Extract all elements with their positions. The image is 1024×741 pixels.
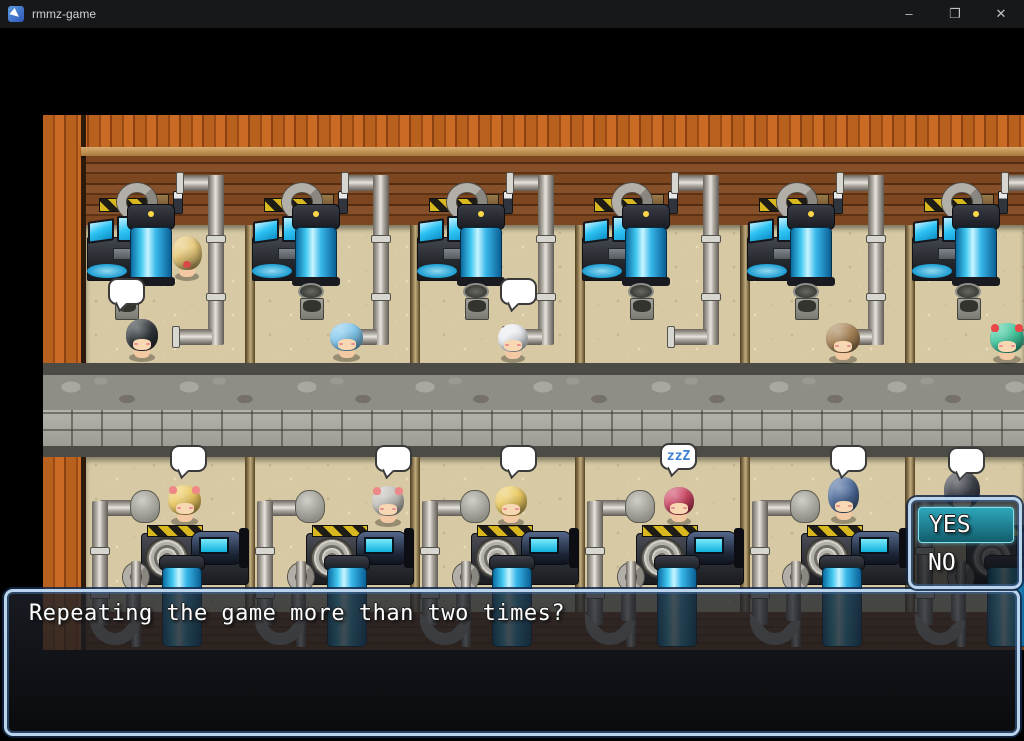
trash-bin-opening <box>633 300 651 312</box>
character-blush <box>505 344 509 346</box>
tank-cylinder <box>790 227 832 282</box>
character-blush <box>503 508 507 510</box>
character-blush <box>392 508 396 510</box>
window-title: rmmz-game <box>32 7 96 21</box>
pipe-vertical <box>373 175 389 345</box>
speech-bubble <box>500 278 537 305</box>
path-edge-top <box>43 363 1024 375</box>
floor-mat-cyan <box>912 264 952 278</box>
speech-bubble <box>108 278 145 305</box>
character-face <box>835 501 853 512</box>
speech-bubble <box>948 447 985 474</box>
character-blush <box>177 507 181 509</box>
tank-light <box>643 211 649 217</box>
speech-bubble <box>500 445 537 472</box>
pipe-vertical <box>703 175 719 345</box>
pipe-vertical <box>538 175 554 345</box>
minimize-button[interactable]: – <box>886 0 932 28</box>
tank-light <box>148 211 154 217</box>
pipe-flange <box>536 235 556 243</box>
pipe-flange <box>1001 172 1009 194</box>
sack <box>295 490 325 523</box>
tank-light <box>313 211 319 217</box>
side-tank-cap <box>569 528 579 568</box>
floor-mat-cyan <box>87 264 127 278</box>
character-ribbon <box>169 486 177 494</box>
character-face <box>338 339 356 350</box>
sack <box>130 490 160 523</box>
character-blush <box>847 345 851 347</box>
console-screen-left <box>88 218 114 244</box>
side-tank-screen <box>694 537 724 554</box>
character-npc-green-hair <box>990 320 1024 362</box>
side-tank-cap <box>734 528 744 568</box>
pipe-flange <box>506 172 514 194</box>
character-blush <box>515 508 519 510</box>
character-blush <box>836 505 840 507</box>
character-npc-brown-hair <box>826 320 860 362</box>
console-screen-left <box>253 218 279 244</box>
message-text: Repeating the game more than two times? <box>29 601 565 626</box>
character-face <box>834 341 852 352</box>
maximize-button[interactable]: ❐ <box>932 0 978 28</box>
choice-option-no[interactable]: NO <box>918 546 1014 582</box>
path-cobble-face <box>43 410 1024 446</box>
trash-bin-opening <box>468 300 486 312</box>
app-icon <box>8 6 24 22</box>
speech-bubble <box>170 445 207 472</box>
character-blush <box>189 507 193 509</box>
wall-wood-top <box>43 115 1024 150</box>
character-npc-blonde-2 <box>495 483 527 525</box>
character-blush <box>671 507 675 509</box>
tank-light <box>973 211 979 217</box>
character-blush <box>146 343 150 345</box>
pipe-flange <box>206 293 226 301</box>
tank-cylinder <box>295 227 337 282</box>
character-blush <box>380 508 384 510</box>
character-blush <box>848 505 852 507</box>
wall-wood-left-upper <box>43 115 81 374</box>
console-screen-left <box>418 218 444 244</box>
character-blush <box>683 507 687 509</box>
character-face <box>133 339 151 350</box>
pipe-bottom-stub <box>178 329 212 345</box>
pipe-flange <box>341 172 349 194</box>
side-tank-screen <box>364 537 394 554</box>
pipe-flange <box>371 235 391 243</box>
character-npc-darkblue-hair <box>828 474 859 522</box>
pipe-flange <box>536 293 556 301</box>
tank-light <box>478 211 484 217</box>
floor-mat-cyan <box>582 264 622 278</box>
message-window[interactable]: Repeating the game more than two times? <box>4 589 1020 736</box>
floor-mat-cyan <box>417 264 457 278</box>
map-scene: zzZ <box>43 115 1024 650</box>
character-blush <box>134 343 138 345</box>
character-blush <box>1011 345 1015 347</box>
character-face <box>998 341 1016 352</box>
tank-cylinder <box>130 227 172 282</box>
character-blush <box>999 345 1003 347</box>
trash-bin-opening <box>960 300 978 312</box>
side-tank-screen <box>859 537 889 554</box>
sack <box>625 490 655 523</box>
pipe-flange <box>667 326 675 348</box>
pipe-flange <box>206 235 226 243</box>
character-npc-white-hair <box>498 321 528 361</box>
pipe-flange <box>420 547 440 555</box>
pipe-flange <box>701 293 721 301</box>
sack <box>790 490 820 523</box>
side-tank-screen <box>529 537 559 554</box>
character-blush <box>835 345 839 347</box>
pipe-vertical <box>868 175 884 345</box>
pipe-flange <box>585 547 605 555</box>
character-blush <box>351 343 355 345</box>
pipe-flange <box>255 547 275 555</box>
side-tank-screen <box>199 537 229 554</box>
pipe-flange <box>866 235 886 243</box>
choice-option-yes[interactable]: YES <box>918 507 1014 543</box>
pipe-flange <box>836 172 844 194</box>
character-npc-black-hair <box>126 316 158 360</box>
pipe-flange <box>371 293 391 301</box>
console-screen-left <box>583 218 609 244</box>
side-tank-cap <box>404 528 414 568</box>
pipe-flange <box>90 547 110 555</box>
character-ribbon <box>373 487 381 495</box>
character-face <box>504 340 522 351</box>
titlebar: rmmz-game – ❐ ✕ <box>0 0 1024 28</box>
trash-bin-opening <box>798 300 816 312</box>
character-face <box>176 503 194 514</box>
path-walkway <box>43 375 1024 410</box>
floor-mat-cyan <box>747 264 787 278</box>
wall-beam <box>81 147 1024 156</box>
console-screen-left <box>913 218 939 244</box>
character-blush <box>517 344 521 346</box>
character-ribbon <box>395 487 403 495</box>
pipe-flange <box>750 547 770 555</box>
pipe-flange <box>866 293 886 301</box>
game-viewport[interactable]: zzZ Repeating the game more than two tim… <box>0 28 1024 741</box>
character-face <box>502 504 520 515</box>
speech-bubble-sleep: zzZ <box>660 443 697 470</box>
character-face <box>379 504 397 515</box>
pipe-flange <box>172 326 180 348</box>
character-npc-red-hair <box>664 484 694 524</box>
speech-bubble <box>830 445 867 472</box>
character-face <box>670 503 688 514</box>
sack <box>460 490 490 523</box>
speech-bubble <box>375 445 412 472</box>
tank-cylinder <box>460 227 502 282</box>
character-ribbon <box>1015 324 1023 332</box>
pipe-top-stub <box>1007 175 1024 191</box>
tank-cylinder <box>625 227 667 282</box>
close-button[interactable]: ✕ <box>978 0 1024 28</box>
trash-bin-opening <box>303 300 321 312</box>
character-player-blonde <box>172 233 202 279</box>
floor-mat-cyan <box>252 264 292 278</box>
character-blush <box>339 343 343 345</box>
console-screen-left <box>748 218 774 244</box>
pipe-flange <box>671 172 679 194</box>
character-bow <box>183 261 191 268</box>
tank-cylinder <box>955 227 997 282</box>
pipe-bottom-stub <box>673 329 707 345</box>
pipe-flange <box>701 235 721 243</box>
choice-window: YESNO <box>908 497 1022 589</box>
character-ribbon <box>192 486 200 494</box>
tank-light <box>808 211 814 217</box>
side-tank-cap <box>239 528 249 568</box>
character-npc-gray-hair <box>372 483 404 525</box>
pipe-flange <box>176 172 184 194</box>
character-npc-lightblue-hair <box>330 320 363 360</box>
pipe-vertical <box>208 175 224 345</box>
character-npc-blonde-bow <box>168 482 201 524</box>
character-ribbon <box>991 324 999 332</box>
